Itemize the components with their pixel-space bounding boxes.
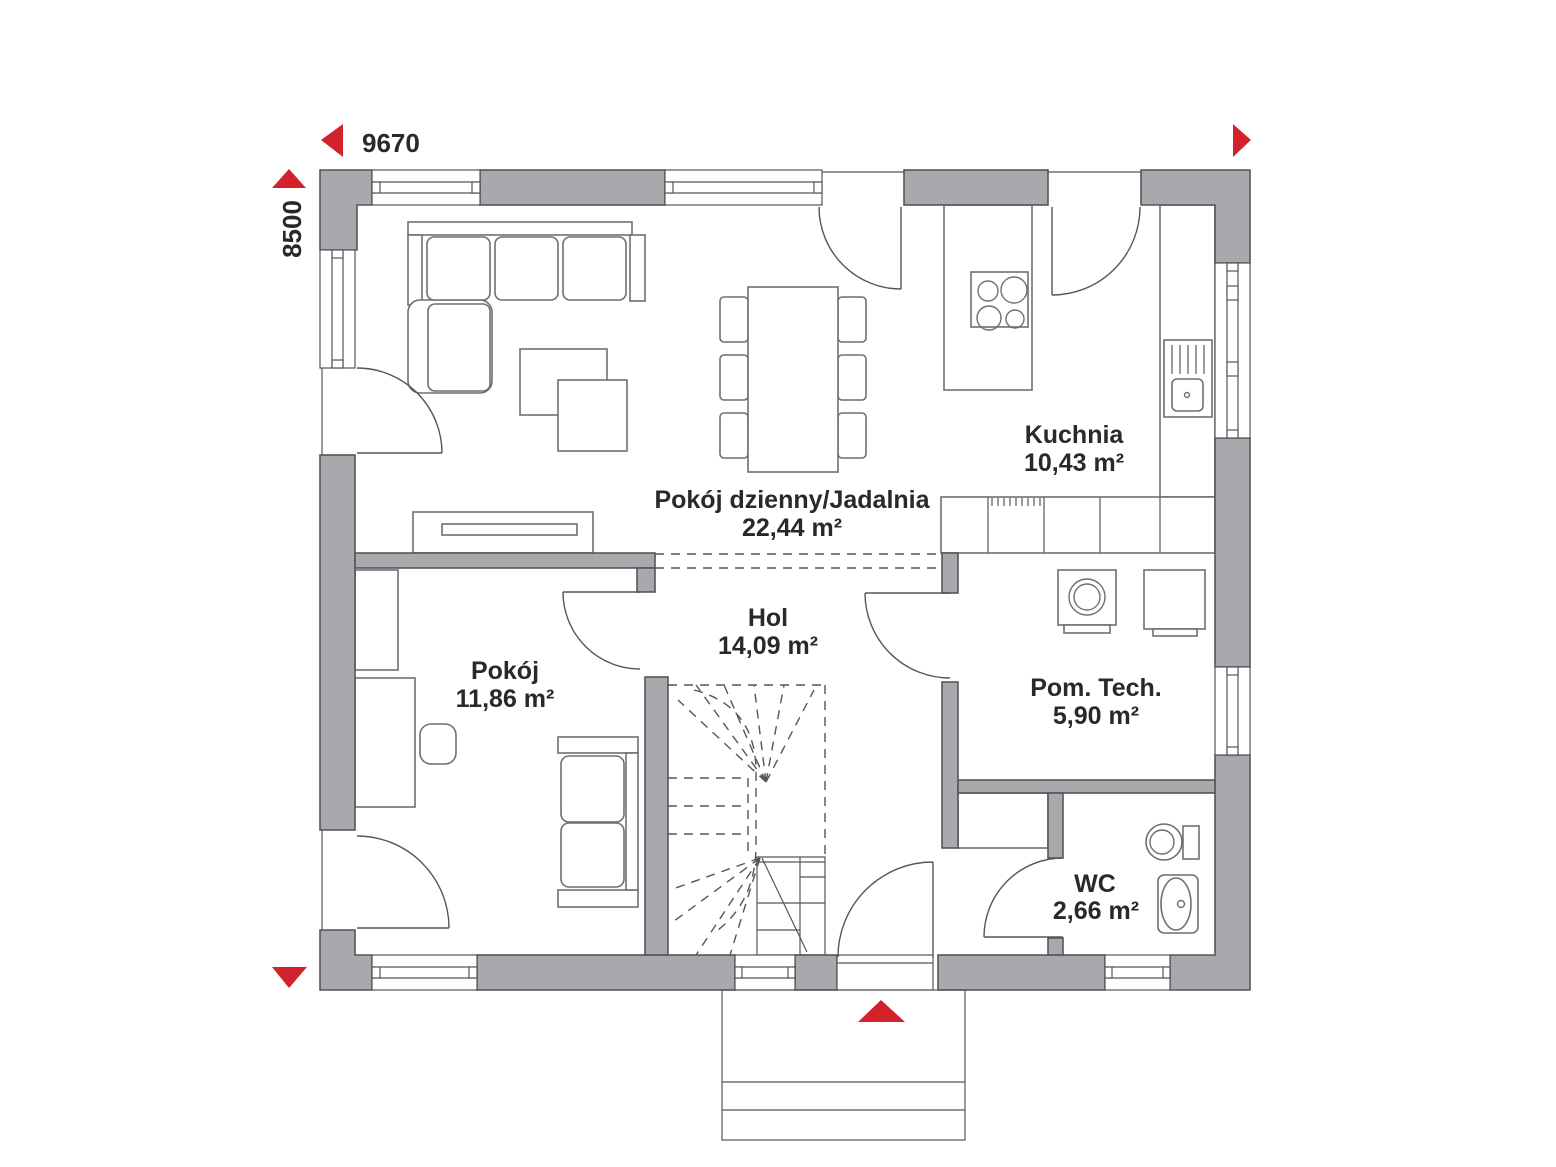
room-area-kuchnia: 10,43 m² — [1024, 449, 1124, 477]
tv-cabinet — [413, 512, 593, 553]
door-pomtech — [865, 593, 950, 678]
wall-stub-wc-bottom — [1048, 938, 1063, 955]
room-label-kuchnia: Kuchnia — [1025, 421, 1125, 449]
window-bottom-pokoj — [372, 955, 477, 990]
room-area-hol: 14,09 m² — [718, 632, 818, 660]
dimension-arrow-up-icon — [272, 169, 306, 188]
room-divider-dashed — [655, 554, 942, 568]
wall-bottom-b — [795, 955, 837, 990]
window-bottom-stairs — [735, 955, 795, 990]
room-area-wc: 2,66 m² — [1053, 897, 1139, 925]
door-pokoj-terrace — [322, 830, 449, 930]
room-area-pokoj: 11,86 m² — [456, 685, 555, 713]
window-top-dining — [665, 170, 822, 205]
desk-chair — [420, 724, 456, 764]
wall-wc-left — [1048, 793, 1063, 858]
kitchen-sink — [1164, 340, 1212, 417]
window-bottom-wc — [1105, 955, 1170, 990]
dimension-arrow-down-icon — [272, 967, 307, 988]
room-label-wc: WC — [1074, 870, 1116, 898]
dimension-arrow-right-icon — [1233, 124, 1251, 157]
window-left-living — [320, 250, 355, 368]
water-heater — [1144, 570, 1205, 636]
floor-plan-page: 9670 8500 Kuchnia 10,43 m² Pokój dzienny… — [0, 0, 1556, 1167]
window-top-living — [372, 170, 480, 205]
coffee-tables — [520, 349, 627, 451]
floor-plan-svg: 9670 8500 Kuchnia 10,43 m² Pokój dzienny… — [0, 0, 1556, 1167]
door-dining-garden — [819, 172, 904, 289]
wall-bottom-a — [477, 955, 735, 990]
door-kitchen-garden — [1048, 172, 1141, 295]
wall-bottom-c — [938, 955, 1105, 990]
toilet — [1146, 824, 1199, 860]
daybed — [558, 737, 638, 907]
window-right-kitchen — [1215, 263, 1250, 438]
desk — [355, 678, 456, 807]
dimension-width-label: 9670 — [362, 128, 420, 158]
dimension-height-label: 8500 — [277, 200, 307, 258]
kitchen-cabinets — [941, 497, 1215, 553]
wall-top-a — [480, 170, 665, 205]
room-area-pokoj-dzienny: 22,44 m² — [742, 514, 842, 542]
door-pokoj — [563, 592, 640, 669]
washing-machine — [1058, 570, 1116, 633]
window-right-pomtech — [1215, 667, 1250, 755]
room-label-hol: Hol — [748, 604, 788, 632]
wall-corner-top-left — [320, 170, 372, 250]
door-wc — [984, 858, 1063, 937]
stairs — [668, 685, 825, 955]
washbasin — [1158, 875, 1198, 933]
wall-stairs-left — [645, 677, 668, 955]
wall-pomtech-wc — [958, 780, 1215, 793]
wall-hol-pomtech — [942, 682, 958, 848]
door-entrance — [837, 862, 933, 990]
wall-living-pokoj — [355, 553, 655, 568]
entrance-porch — [722, 990, 965, 1140]
wall-left-mid — [320, 455, 355, 830]
entry-alcove — [958, 793, 1048, 848]
entrance-arrow-icon — [858, 1000, 905, 1022]
room-area-pomtech: 5,90 m² — [1053, 702, 1139, 730]
kitchen-island — [944, 205, 1032, 390]
wall-corner-bottom-left — [320, 930, 372, 990]
dining-table — [720, 287, 866, 472]
wall-right-mid — [1215, 438, 1250, 667]
wall-top-b — [904, 170, 1048, 205]
room-label-pokoj-dzienny: Pokój dzienny/Jadalnia — [654, 486, 930, 514]
room-label-pomtech: Pom. Tech. — [1030, 674, 1162, 702]
wardrobe — [355, 570, 398, 670]
kitchen-counter — [1160, 205, 1215, 497]
dimension-arrow-left-icon — [321, 124, 343, 157]
wall-stub-pomtech-top — [942, 553, 958, 593]
wall-stub-pokoj-door — [637, 568, 655, 592]
room-label-pokoj: Pokój — [471, 657, 539, 685]
furniture — [355, 205, 1215, 933]
